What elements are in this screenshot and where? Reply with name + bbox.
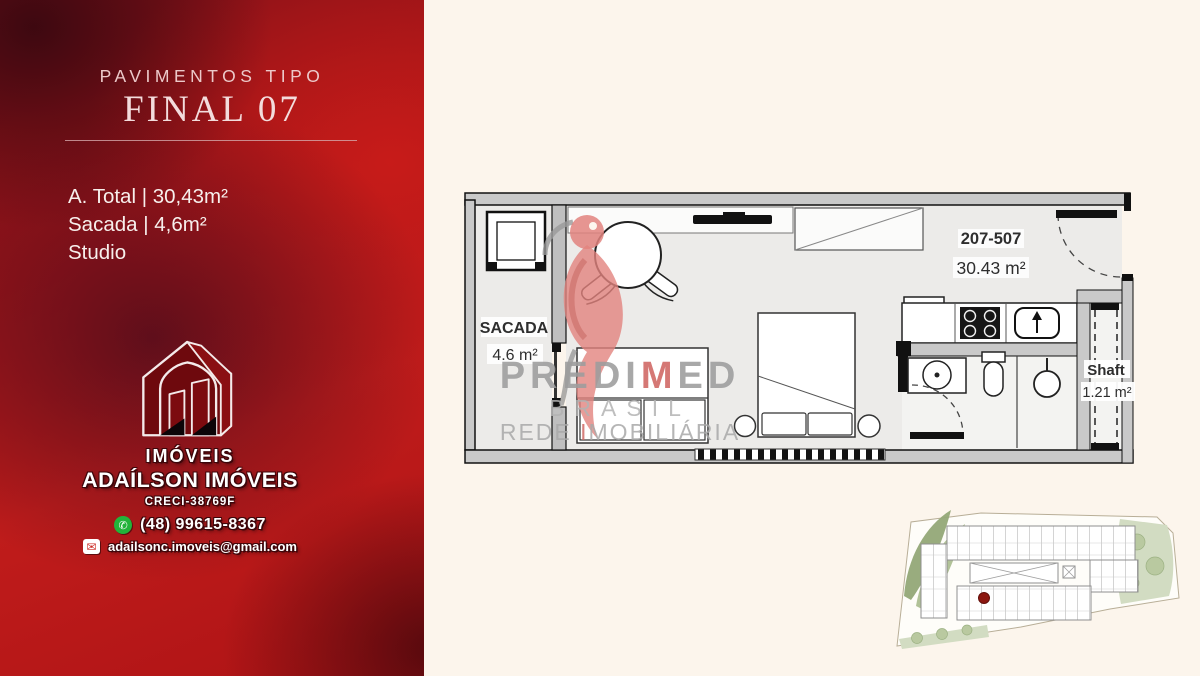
left-panel: PAVIMENTOS TIPO FINAL 07 A. Total | 30,4… (0, 0, 424, 676)
sliding-door (554, 352, 557, 398)
brand-imoveis: IMÓVEIS (0, 446, 380, 467)
email-address: adailsonc.imoveis@gmail.com (108, 539, 297, 554)
agency-logo-block: IMÓVEIS ADAÍLSON IMÓVEIS CRECI-38769F ✆ … (0, 336, 380, 554)
wardrobe (795, 208, 923, 250)
sofa (577, 348, 708, 443)
email-row: ✉ adailsonc.imoveis@gmail.com (0, 539, 380, 554)
toilet (982, 352, 1005, 396)
brand-adailson-imoveis: ADAÍLSON IMÓVEIS (0, 468, 380, 493)
stove (960, 307, 1000, 339)
spec-total-area: A. Total | 30,43m² (68, 183, 228, 211)
spec-balcony-area: Sacada | 4,6m² (68, 211, 228, 239)
pavimentos-heading: PAVIMENTOS TIPO (0, 66, 424, 87)
unit-area-label: 30.43 m² (956, 258, 1025, 278)
shaft-label: Shaft (1087, 362, 1125, 379)
balcony-area-label: 4.6 m² (492, 347, 538, 364)
phone-row: ✆ (48) 99615-8367 (0, 516, 380, 534)
phone-number: (48) 99615-8367 (140, 516, 266, 534)
creci-number: CRECI-38769F (0, 496, 380, 508)
unit-range-label: 207-507 (961, 230, 1022, 248)
nightstand-left (735, 416, 756, 437)
final-07-heading: FINAL 07 (0, 88, 424, 131)
balcony-window-box (487, 212, 545, 270)
balcony-label: SACADA (480, 320, 549, 337)
unit-specs: A. Total | 30,43m² Sacada | 4,6m² Studio (68, 183, 228, 267)
floor-plan: SACADA 4.6 m² 207-507 30.43 m² Shaft 1.2… (455, 186, 1150, 478)
whatsapp-icon: ✆ (114, 516, 132, 534)
email-icon: ✉ (83, 539, 100, 554)
window-hatch (695, 449, 885, 460)
unit-location-marker (979, 593, 990, 604)
bathroom-vanity (908, 358, 966, 393)
spec-unit-type: Studio (68, 239, 228, 267)
kitchen-counter (902, 297, 1077, 343)
flyer-page: PAVIMENTOS TIPO FINAL 07 A. Total | 30,4… (0, 0, 1200, 676)
divider-line (65, 140, 357, 141)
kitchen-sink (1015, 308, 1059, 338)
shaft-area-label: 1.21 m² (1082, 385, 1131, 401)
house-logo-icon (134, 336, 246, 444)
nightstand-right (858, 415, 880, 437)
site-key-plan (885, 498, 1195, 663)
